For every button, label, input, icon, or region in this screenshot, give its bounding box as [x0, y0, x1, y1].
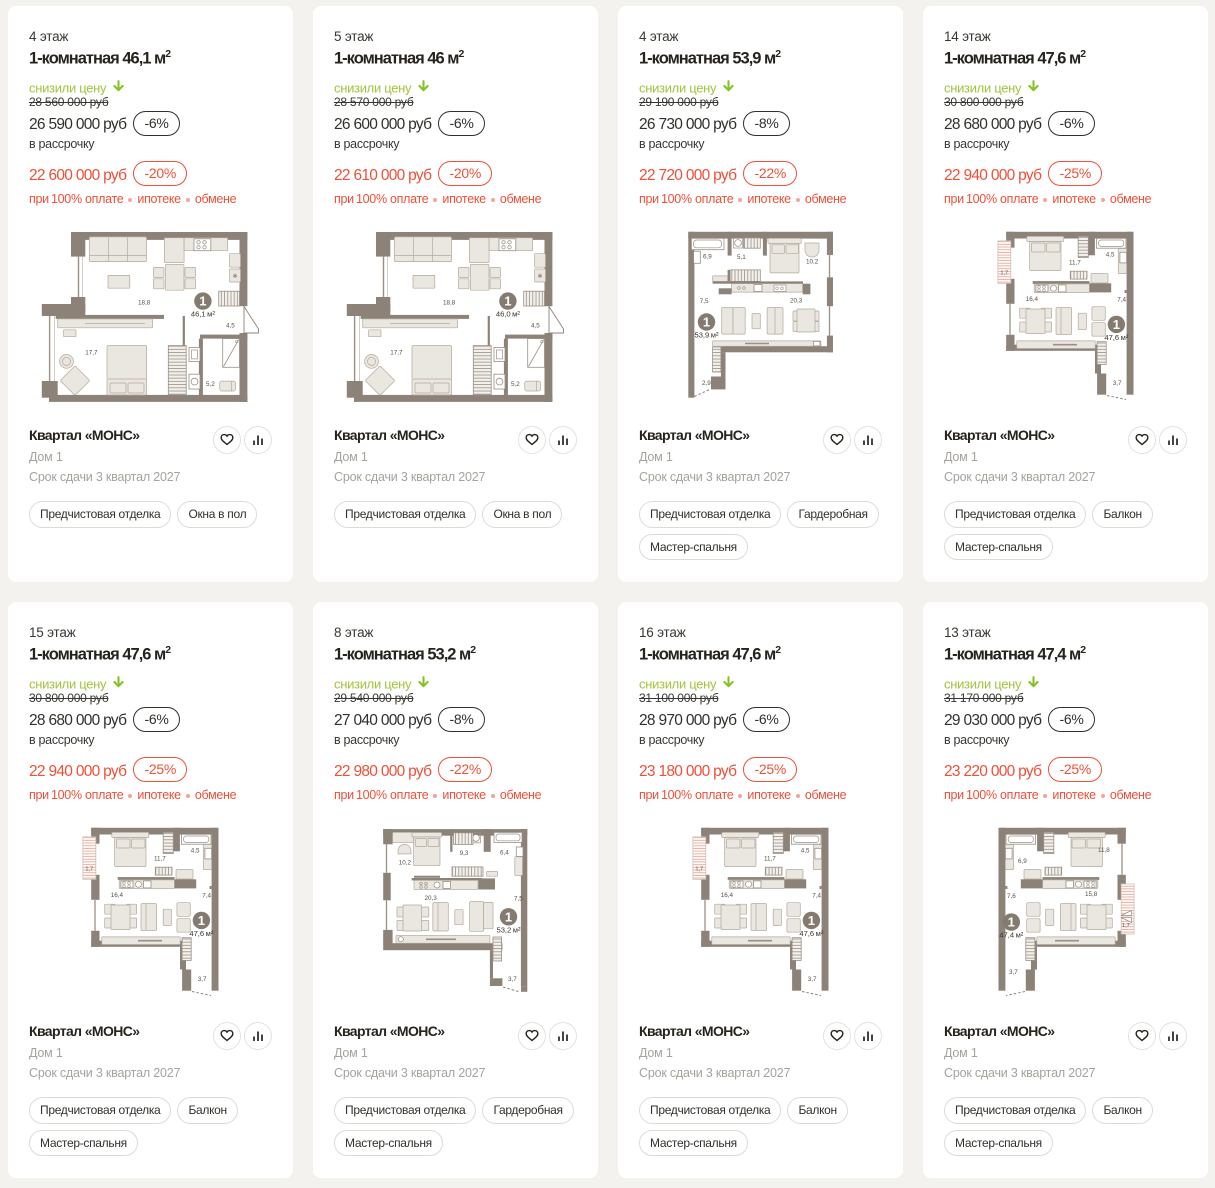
svg-text:4,5: 4,5: [226, 323, 235, 330]
svg-text:20,3: 20,3: [425, 895, 438, 902]
svg-text:7,5: 7,5: [700, 298, 709, 305]
svg-text:1: 1: [1113, 317, 1120, 332]
svg-text:1: 1: [1008, 915, 1015, 930]
svg-text:3,7: 3,7: [1009, 969, 1018, 976]
svg-text:3,7: 3,7: [1113, 380, 1122, 387]
svg-text:4,5: 4,5: [801, 848, 810, 855]
svg-text:3,7: 3,7: [508, 976, 517, 983]
svg-text:18,8: 18,8: [138, 300, 151, 307]
svg-text:1: 1: [199, 294, 206, 309]
svg-text:11,8: 11,8: [1098, 847, 1110, 854]
svg-text:7,5: 7,5: [514, 896, 523, 903]
svg-text:17,7: 17,7: [85, 350, 98, 357]
svg-text:1: 1: [505, 909, 512, 924]
svg-text:7,4: 7,4: [812, 893, 821, 900]
svg-text:16,4: 16,4: [1026, 296, 1039, 303]
svg-text:5,2: 5,2: [206, 381, 215, 388]
svg-text:1: 1: [504, 294, 511, 309]
svg-text:6,9: 6,9: [1018, 858, 1027, 865]
svg-text:17,7: 17,7: [390, 350, 403, 357]
svg-text:2,9: 2,9: [702, 380, 711, 387]
svg-text:11,7: 11,7: [1069, 260, 1081, 267]
svg-text:1: 1: [808, 913, 815, 928]
svg-text:1,7: 1,7: [1000, 270, 1008, 276]
svg-text:10,2: 10,2: [399, 860, 412, 867]
svg-text:9,3: 9,3: [460, 850, 469, 857]
svg-text:47,4 м²: 47,4 м²: [999, 931, 1024, 940]
svg-text:47,6 м²: 47,6 м²: [189, 929, 214, 938]
svg-text:16,4: 16,4: [721, 892, 734, 899]
svg-text:✱: ✱: [232, 273, 237, 280]
svg-text:47,6 м²: 47,6 м²: [1104, 333, 1129, 342]
svg-text:5,1: 5,1: [737, 254, 746, 261]
svg-text:6,4: 6,4: [500, 850, 509, 857]
svg-text:✱: ✱: [537, 273, 542, 280]
svg-text:7,6: 7,6: [1007, 893, 1016, 900]
svg-text:11,7: 11,7: [154, 856, 166, 863]
svg-text:4,5: 4,5: [1106, 252, 1115, 259]
svg-text:15,8: 15,8: [1085, 891, 1098, 898]
svg-text:4,5: 4,5: [531, 323, 540, 330]
svg-text:1: 1: [198, 913, 205, 928]
svg-text:1,7: 1,7: [85, 866, 93, 872]
svg-text:3,7: 3,7: [808, 976, 817, 983]
svg-text:46,1 м²: 46,1 м²: [191, 310, 216, 319]
svg-text:47,6 м²: 47,6 м²: [799, 929, 824, 938]
svg-text:18,8: 18,8: [443, 300, 456, 307]
svg-text:7,4: 7,4: [1117, 297, 1126, 304]
svg-text:20,3: 20,3: [790, 298, 803, 305]
svg-text:1,7: 1,7: [1122, 923, 1130, 929]
svg-text:5,2: 5,2: [511, 381, 520, 388]
svg-text:53,9 м²: 53,9 м²: [694, 331, 719, 340]
svg-text:4,5: 4,5: [191, 848, 200, 855]
svg-text:3,7: 3,7: [198, 976, 207, 983]
svg-text:1,7: 1,7: [695, 866, 703, 872]
svg-text:10,2: 10,2: [806, 259, 819, 266]
svg-text:1: 1: [703, 315, 710, 330]
svg-text:6,9: 6,9: [703, 253, 712, 260]
svg-text:16,4: 16,4: [111, 892, 124, 899]
svg-text:11,7: 11,7: [764, 856, 776, 863]
svg-text:46,0 м²: 46,0 м²: [496, 310, 521, 319]
svg-text:7,4: 7,4: [202, 893, 211, 900]
svg-text:53,2 м²: 53,2 м²: [496, 925, 521, 934]
